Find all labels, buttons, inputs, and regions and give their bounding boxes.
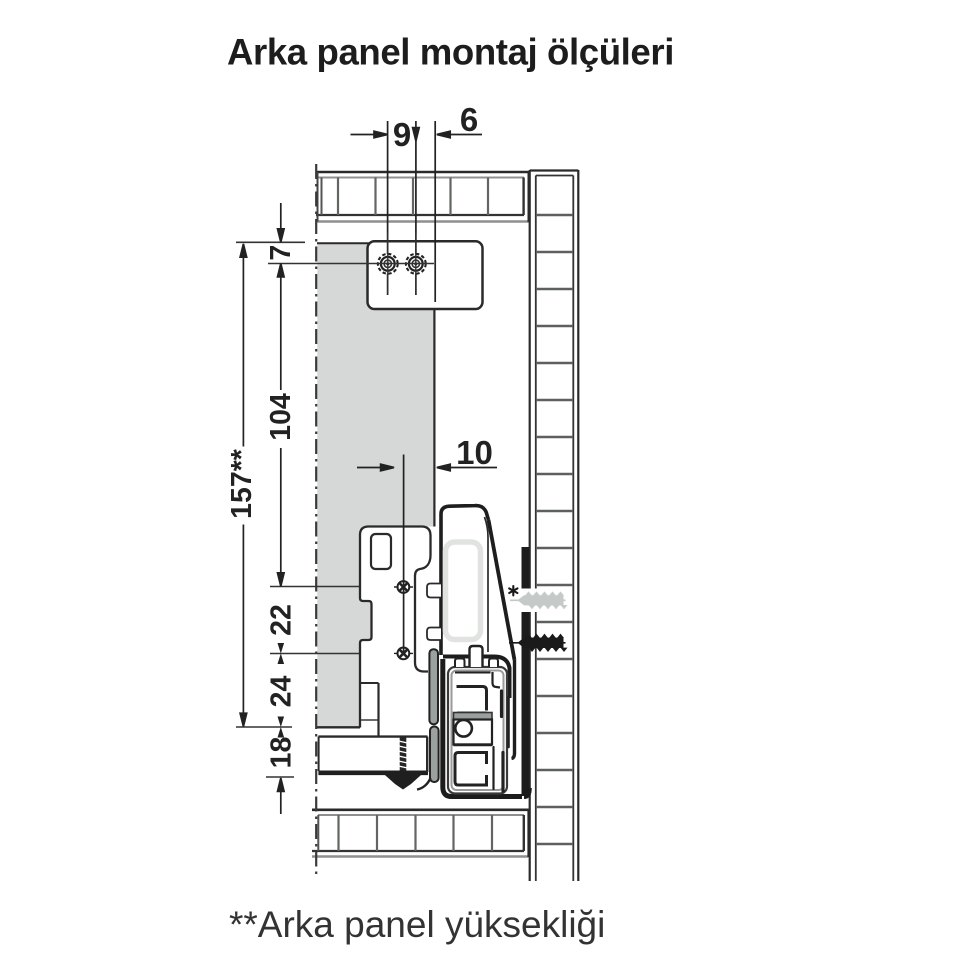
svg-text:10: 10: [456, 434, 493, 471]
svg-text:9: 9: [393, 116, 411, 153]
svg-text:22: 22: [266, 604, 298, 636]
svg-text:7: 7: [265, 245, 297, 261]
svg-text:6: 6: [460, 101, 478, 138]
svg-text:157**: 157**: [226, 448, 258, 519]
svg-text:**Arka panel yüksekliği: **Arka panel yüksekliği: [229, 904, 605, 945]
svg-text:Arka panel montaj ölçüleri: Arka panel montaj ölçüleri: [227, 32, 674, 73]
svg-text:24: 24: [266, 676, 298, 708]
svg-text:18: 18: [266, 737, 298, 769]
svg-text:104: 104: [265, 393, 297, 441]
